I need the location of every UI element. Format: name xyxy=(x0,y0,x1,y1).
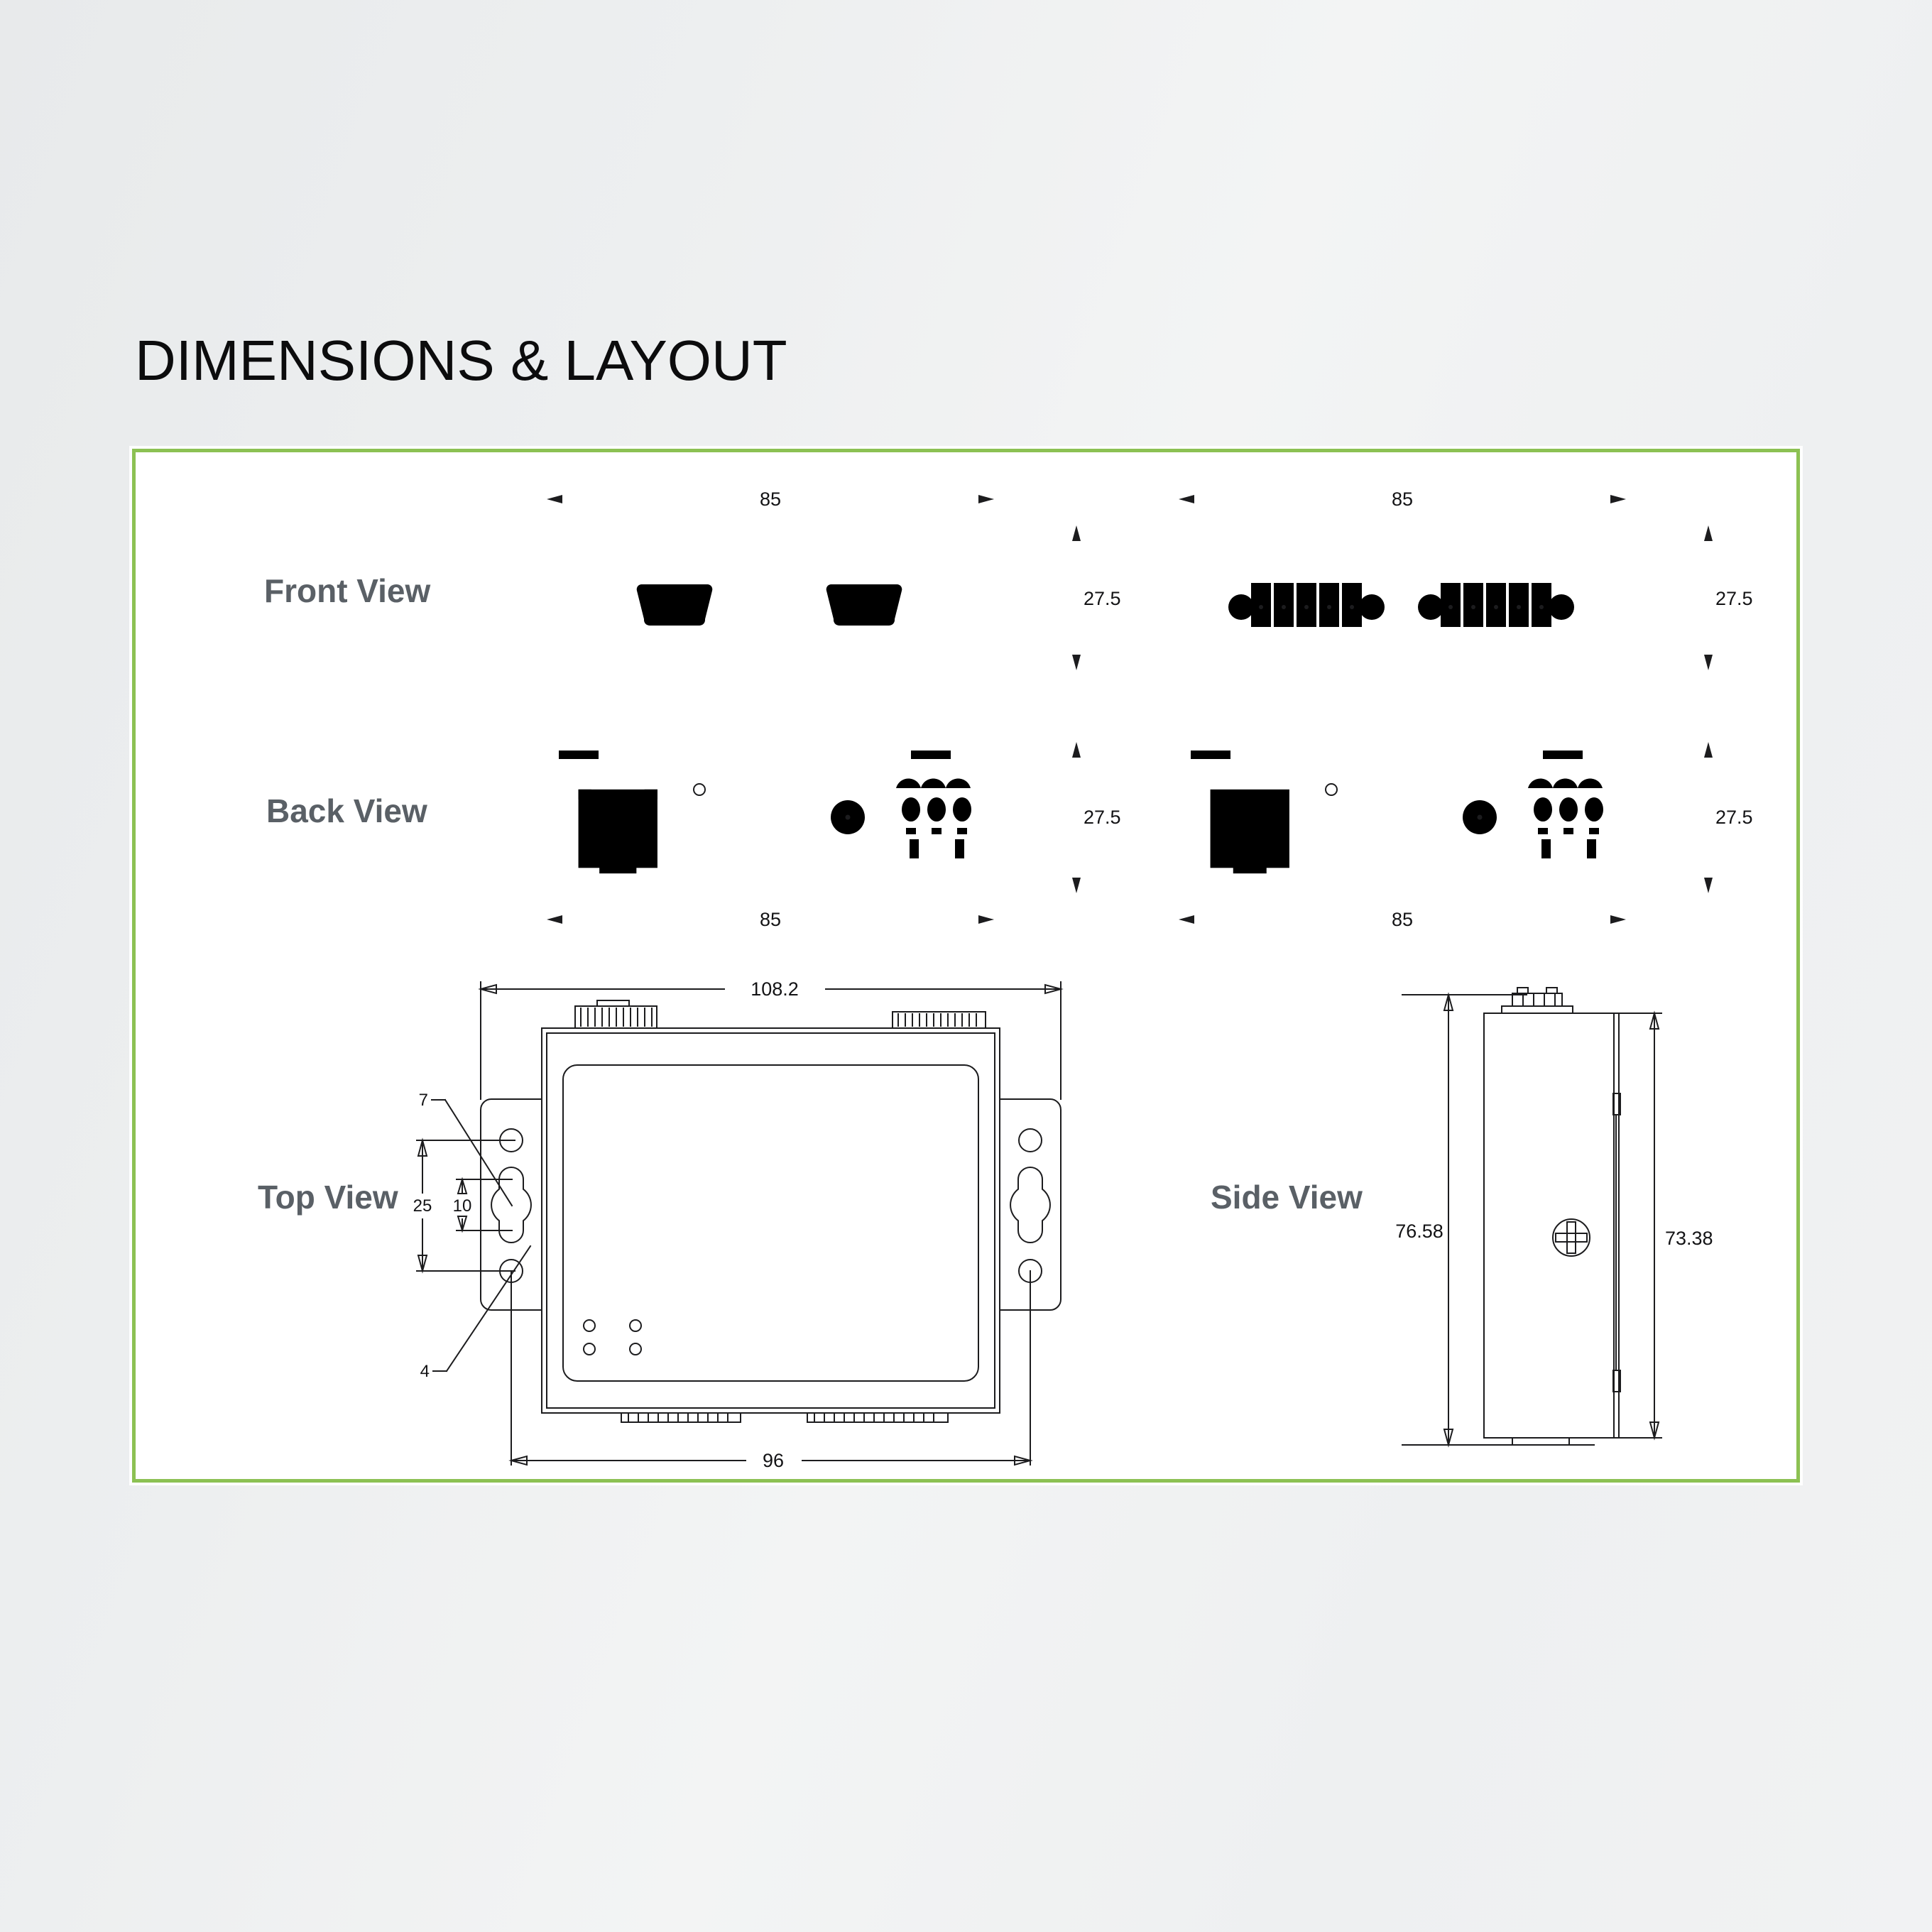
front-view-serial-drawing: 85 27.5 xyxy=(451,479,1140,724)
back-terminal-height-dim: 27.5 xyxy=(1715,807,1753,828)
front-view-terminal-drawing: 85 27.5 xyxy=(1083,479,1772,724)
chassis-top-outline xyxy=(542,1028,1000,1413)
side-view-drawing: 76.58 73.38 xyxy=(1388,948,1828,1486)
front-terminal-width-dim: 85 xyxy=(1392,489,1413,510)
chassis-front-outline xyxy=(483,525,1058,670)
terminal-block-5pin-icon xyxy=(1226,559,1387,640)
rj45-port-icon xyxy=(1204,784,1297,873)
db9-top-profile xyxy=(575,1000,657,1028)
dimensions-panel: Front View Back View Top View Side View … xyxy=(132,449,1800,1483)
terminal-top-profile xyxy=(893,1012,986,1028)
top-view-drawing: 108.2 xyxy=(337,948,1211,1486)
side-body-height-dim: 73.38 xyxy=(1665,1228,1713,1249)
page: DIMENSIONS & LAYOUT Front View Back View… xyxy=(0,0,1932,1932)
dc-jack-icon xyxy=(1452,778,1507,856)
top-connector-profile xyxy=(1502,988,1573,1013)
top-hole-pitch-dim: 25 xyxy=(413,1196,432,1216)
page-title: DIMENSIONS & LAYOUT xyxy=(135,328,787,393)
back-view-serial-drawing: 85 27.5 xyxy=(451,710,1140,955)
side-overall-height-dim: 76.58 xyxy=(1395,1221,1443,1242)
screw-icon xyxy=(1553,1219,1590,1256)
chassis-side-outline xyxy=(1484,1013,1619,1438)
front-terminal-height-dim: 27.5 xyxy=(1715,588,1753,609)
top-overall-width-dim: 108.2 xyxy=(751,978,799,1000)
back-serial-width-dim: 85 xyxy=(760,909,781,930)
chassis-front-outline xyxy=(1115,525,1690,670)
back-view-terminal-drawing: 85 27.5 xyxy=(1083,710,1772,955)
dc-jack-icon xyxy=(820,778,875,856)
top-hole-span-dim: 96 xyxy=(763,1450,784,1471)
back-view-label: Back View xyxy=(266,792,427,830)
back-terminal-width-dim: 85 xyxy=(1392,909,1413,930)
led-holes xyxy=(584,1320,641,1355)
top-hole-diameter-dim: 4 xyxy=(420,1362,430,1381)
side-view-label: Side View xyxy=(1211,1178,1363,1216)
terminal-block-5pin-icon xyxy=(1416,559,1576,640)
front-view-label: Front View xyxy=(264,572,430,610)
bottom-edge-profile xyxy=(621,1413,948,1422)
top-slot-length-dim: 10 xyxy=(453,1196,472,1216)
top-slot-width-dim: 7 xyxy=(419,1091,428,1110)
rj45-port-icon xyxy=(572,784,665,873)
bottom-foot-profile xyxy=(1512,1438,1569,1445)
front-serial-width-dim: 85 xyxy=(760,489,781,510)
top-cover-plate xyxy=(563,1065,978,1381)
